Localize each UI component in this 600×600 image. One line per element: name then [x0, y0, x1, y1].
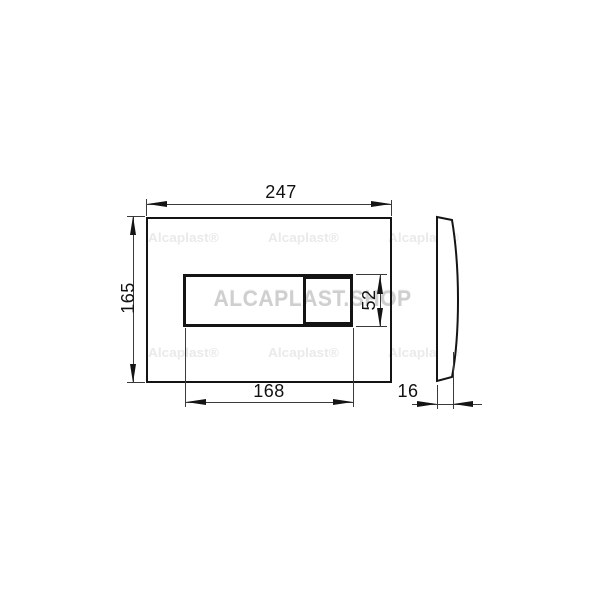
arrowhead-right-icon — [333, 399, 353, 405]
extension-line — [391, 200, 392, 216]
arrowhead-right-icon — [371, 201, 391, 207]
small-button-outline — [303, 276, 353, 325]
plate-width-value: 247 — [246, 182, 316, 202]
dimension-line — [185, 402, 353, 403]
arrowhead-left-icon — [147, 201, 167, 207]
extension-line — [353, 328, 354, 407]
button-width-value: 168 — [234, 381, 304, 401]
plate-depth-value: 16 — [390, 381, 426, 401]
side-view-profile — [425, 205, 465, 415]
dimension-line — [147, 204, 391, 205]
extension-line — [437, 385, 438, 409]
arrowhead-left-icon — [453, 401, 473, 407]
button-height-value: 52 — [359, 278, 379, 322]
arrowhead-right-icon — [417, 401, 437, 407]
arrowhead-up-icon — [130, 216, 136, 235]
plate-height-value: 165 — [118, 276, 138, 320]
arrowhead-down-icon — [130, 364, 136, 383]
arrowhead-left-icon — [186, 399, 206, 405]
technical-drawing-canvas: Alcaplast® Alcaplast® Alcaplast® Alcapla… — [0, 0, 600, 600]
extension-line — [185, 328, 186, 407]
